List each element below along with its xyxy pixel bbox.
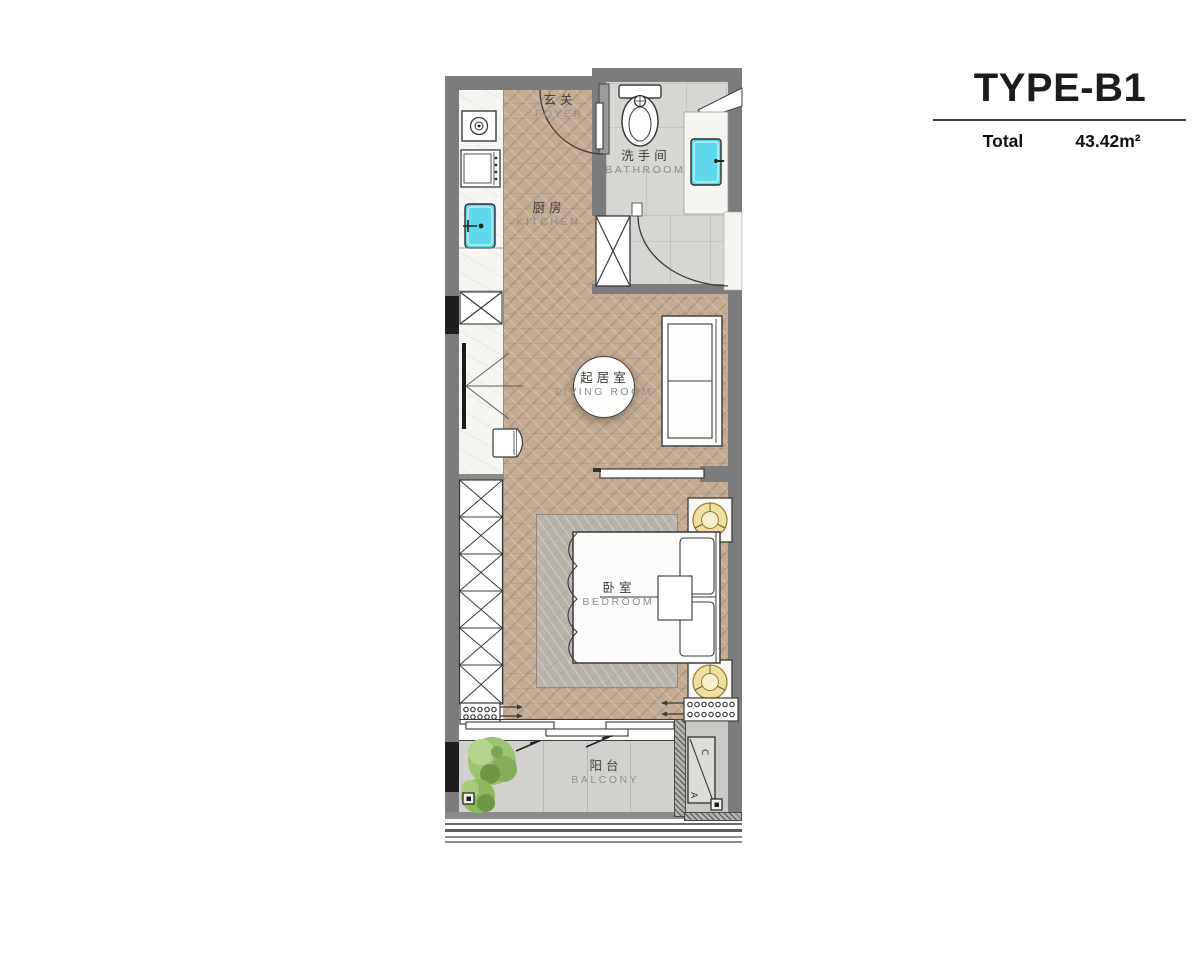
cooktop [462, 111, 496, 141]
sofa [662, 316, 722, 446]
total-area-value: 43.42m² [1048, 131, 1168, 152]
plan-type-title: TYPE-B1 [930, 66, 1190, 111]
bedroom-sliding-door [593, 468, 704, 478]
ac-letter-c: C [699, 749, 709, 755]
towel-bar [596, 103, 603, 149]
tv [462, 343, 523, 429]
kitchen-cabinets [459, 248, 503, 324]
bathroom-door [632, 203, 728, 286]
radiator-left [460, 703, 523, 724]
toilet [619, 85, 661, 146]
radiator-right [661, 698, 738, 721]
total-label: Total [948, 131, 1058, 152]
shaft-box [596, 216, 630, 286]
wardrobe [460, 480, 503, 704]
floor-drains [463, 793, 722, 810]
bed [568, 532, 720, 663]
oven [461, 150, 500, 187]
kitchen-sink [463, 204, 495, 248]
floor-plan-page: C A 玄关 FOYER 洗手间 BATHROOM 厨房 KITCHEN 起居室… [0, 0, 1201, 963]
ac-unit: C A [688, 737, 715, 803]
living-room-table [573, 356, 635, 418]
armchair [493, 428, 523, 457]
bathroom-sink [691, 139, 724, 185]
ac-letter-a: A [688, 792, 698, 799]
title-divider [933, 119, 1186, 121]
